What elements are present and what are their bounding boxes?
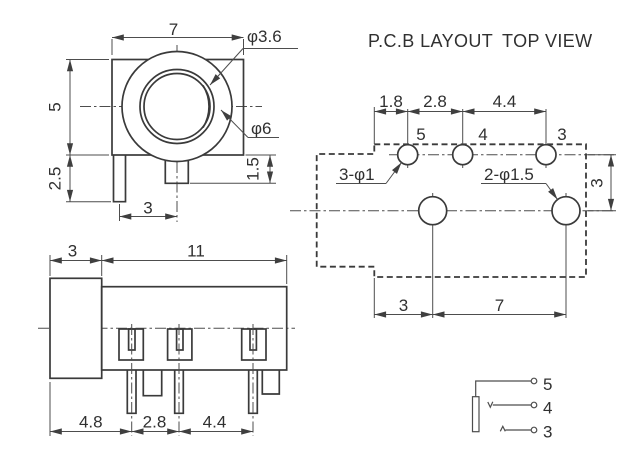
dim-inner-dia-label: φ3.6 bbox=[247, 27, 282, 46]
dim-b-label: 2.8 bbox=[423, 92, 447, 111]
pcb-layout-view: P.C.B LAYOUT TOP VIEW 1.8 2.8 4.4 5 4 3 bbox=[290, 31, 616, 318]
pad-hole-3 bbox=[536, 145, 556, 165]
pad-hole-4 bbox=[453, 145, 473, 165]
dim-pitch-a-label: 4.8 bbox=[79, 413, 103, 432]
schematic-symbol: 5 4 3 bbox=[473, 375, 553, 442]
sleeve-block bbox=[50, 278, 102, 378]
pad5-label: 5 bbox=[416, 125, 425, 144]
pin3-contact bbox=[500, 426, 505, 431]
terminal-slot bbox=[168, 329, 192, 360]
top-view-title: TOP VIEW bbox=[502, 31, 593, 51]
side-view: 3 11 4.8 2.8 4.4 bbox=[38, 242, 295, 437]
technical-drawing-canvas: 7 φ3.6 φ6 5 2.5 1.5 3 bbox=[0, 0, 623, 454]
bushing-outer-circle bbox=[122, 52, 232, 162]
dim-bottom-b-label: 7 bbox=[495, 296, 504, 315]
terminal-slot-inner bbox=[177, 329, 183, 350]
leader-line bbox=[386, 163, 402, 184]
dim-height-label: 5 bbox=[46, 102, 65, 111]
front-pin bbox=[114, 155, 126, 202]
schematic-pin5-label: 5 bbox=[543, 375, 552, 394]
pad-hole-5 bbox=[398, 145, 418, 165]
dim-c-label: 4.4 bbox=[493, 92, 517, 111]
terminal-slot bbox=[242, 329, 266, 360]
leader-line bbox=[546, 184, 558, 200]
mounting-hole bbox=[419, 197, 447, 225]
pad4-label: 4 bbox=[478, 125, 487, 144]
dim-width-label: 7 bbox=[169, 20, 178, 39]
schematic-pin3-label: 3 bbox=[543, 423, 552, 442]
pin3-terminal bbox=[531, 427, 537, 433]
dim-bottom-a-label: 3 bbox=[399, 296, 408, 315]
dim-a-label: 1.8 bbox=[379, 92, 403, 111]
dim-pin-offset-label: 3 bbox=[143, 199, 152, 218]
pin4-contact bbox=[488, 402, 493, 407]
dim-body-width-label: 11 bbox=[187, 242, 205, 261]
dim-pitch-b-label: 2.8 bbox=[143, 413, 167, 432]
dim-outer-dia-label: φ6 bbox=[251, 119, 271, 138]
dim-sleeve-width-label: 3 bbox=[68, 242, 77, 261]
pcb-layout-title: P.C.B LAYOUT bbox=[368, 31, 493, 51]
pin4-terminal bbox=[531, 402, 537, 408]
mounting-hole bbox=[552, 197, 580, 225]
pad3-label: 3 bbox=[557, 125, 566, 144]
dim-tab-height-label: 1.5 bbox=[244, 157, 263, 181]
mounting-peg bbox=[262, 370, 279, 394]
mounting-peg bbox=[143, 370, 161, 396]
pin5-terminal bbox=[531, 378, 537, 384]
schematic-pin4-label: 4 bbox=[543, 399, 552, 418]
dim-row-spacing-label: 3 bbox=[588, 178, 607, 187]
dim-pin-length-label: 2.5 bbox=[46, 167, 65, 191]
large-holes-callout: 2-φ1.5 bbox=[484, 165, 534, 184]
terminal-slot bbox=[119, 329, 143, 360]
drawing-sheet: 7 φ3.6 φ6 5 2.5 1.5 3 bbox=[0, 0, 623, 454]
plug-symbol bbox=[473, 397, 480, 432]
dim-pitch-c-label: 4.4 bbox=[203, 413, 227, 432]
small-holes-callout: 3-φ1 bbox=[339, 165, 375, 184]
front-view: 7 φ3.6 φ6 5 2.5 1.5 3 bbox=[46, 20, 299, 222]
pin5-wire bbox=[476, 381, 531, 397]
